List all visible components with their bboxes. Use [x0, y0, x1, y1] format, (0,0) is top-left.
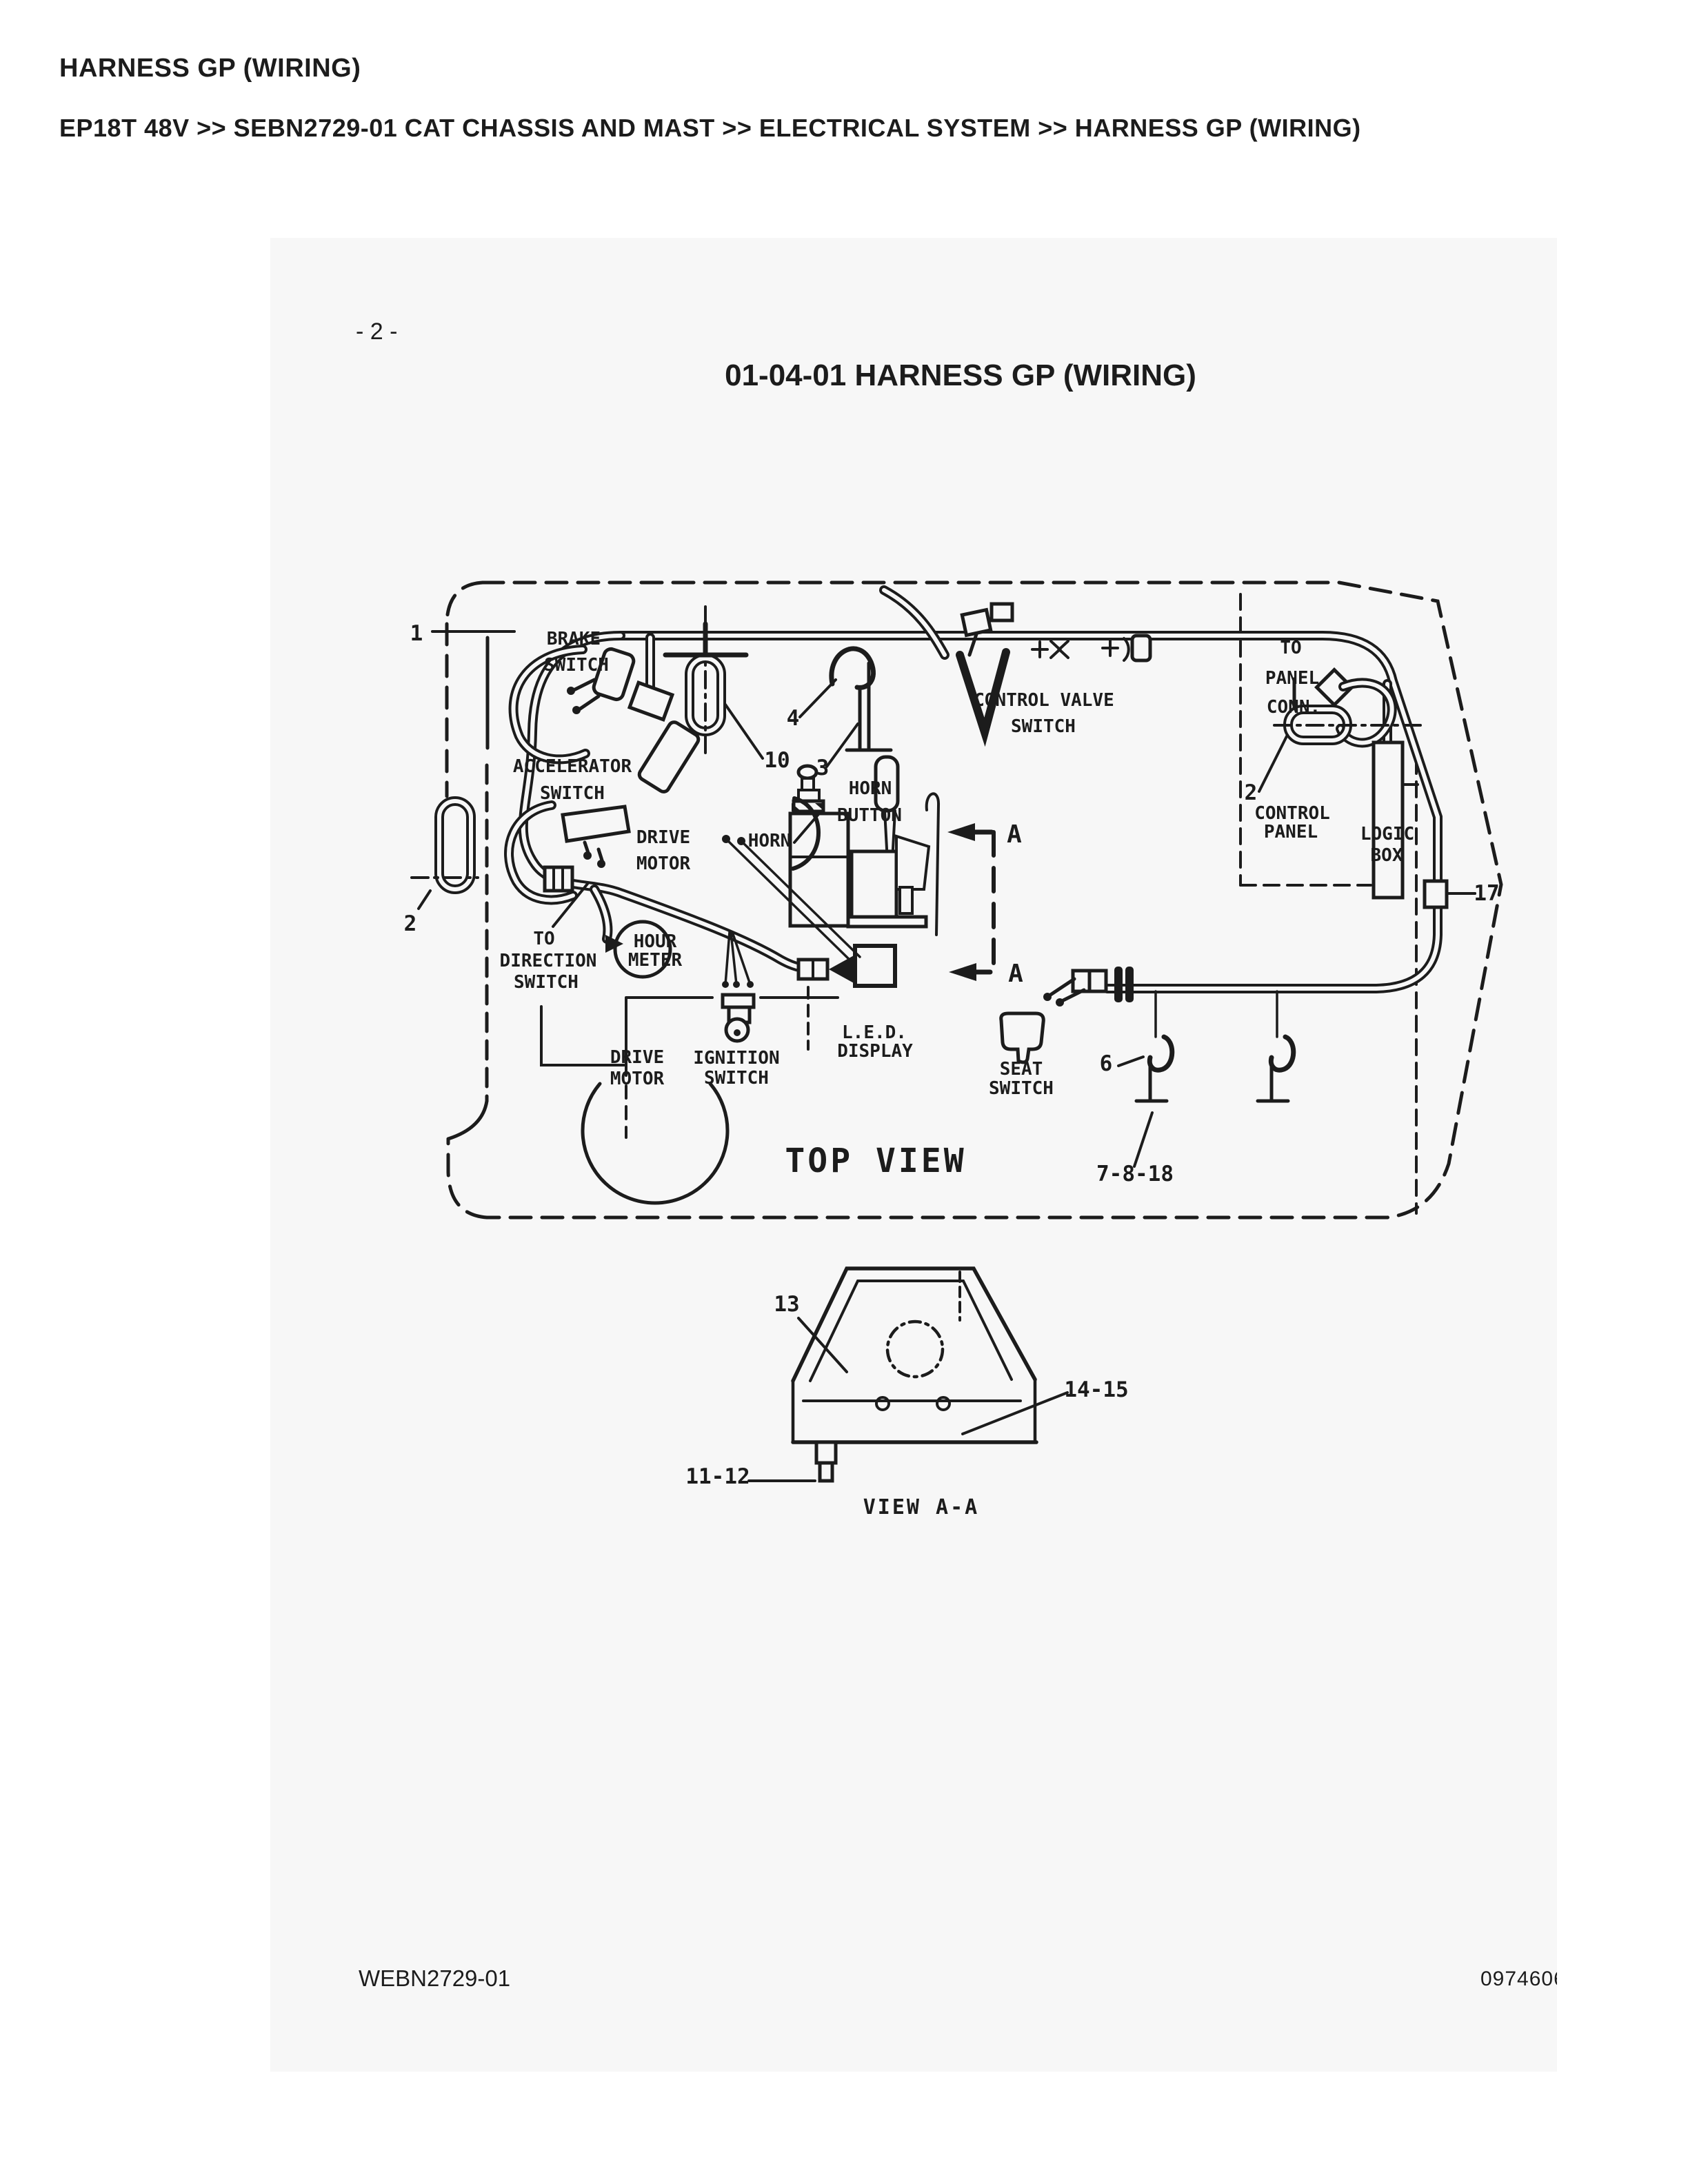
svg-text:METER: METER	[628, 950, 683, 971]
svg-text:MOTOR: MOTOR	[636, 853, 691, 874]
callout-1: 1	[410, 621, 423, 646]
view-a-a-caption: VIEW A-A	[863, 1495, 980, 1519]
callout-3: 3	[816, 756, 830, 780]
label-horn-button: HORN	[849, 778, 892, 799]
svg-text:PANEL: PANEL	[1264, 822, 1318, 842]
svg-text:SWITCH: SWITCH	[1011, 716, 1076, 737]
logic-box-icon	[1374, 742, 1418, 898]
svg-text:SWITCH: SWITCH	[544, 655, 609, 676]
led-display-icon	[798, 946, 895, 986]
svg-text:PANEL: PANEL	[1265, 668, 1319, 689]
top-view-caption: TOP VIEW	[785, 1142, 966, 1180]
clamp-icon-panel-wire	[1258, 991, 1294, 1101]
svg-text:DIRECTION: DIRECTION	[500, 951, 597, 971]
section-arrow-a-lower: A	[1008, 960, 1023, 988]
svg-text:BUTTON: BUTTON	[837, 805, 902, 826]
label-brake-switch: BRAKE	[547, 629, 601, 649]
label-to-direction-switch: TO	[533, 929, 554, 949]
label-control-panel: CONTROL	[1254, 803, 1330, 824]
label-to-panel-conn: TO	[1280, 638, 1301, 658]
label-ignition-switch: IGNITION	[693, 1048, 779, 1069]
svg-text:DISPLAY: DISPLAY	[837, 1041, 913, 1062]
svg-text:SWITCH: SWITCH	[540, 783, 605, 804]
label-accelerator-switch: ACCELERATOR	[513, 756, 632, 777]
callout-2-right: 2	[1245, 780, 1258, 805]
callout-10: 10	[764, 748, 790, 773]
manual-viewer: HARNESS GP (WIRING) EP18T 48V >> SEBN272…	[0, 0, 1688, 2184]
view-a-a-section	[793, 1268, 1036, 1481]
callout-14-15: 14-15	[1064, 1377, 1128, 1402]
callout-17: 17	[1474, 881, 1499, 906]
svg-text:SWITCH: SWITCH	[514, 972, 579, 993]
label-hour-meter: HOUR	[634, 931, 677, 952]
diagram-labels: 1 BRAKE SWITCH ACCELERATOR SWITCH 4 10 3…	[404, 621, 1500, 1519]
section-arrow-a-upper: A	[1007, 820, 1022, 849]
clamp-icon-top	[832, 649, 891, 750]
control-valve-switch-icon	[960, 604, 1150, 732]
svg-text:MOTOR: MOTOR	[610, 1069, 665, 1089]
callout-4: 4	[787, 706, 800, 731]
label-seat-switch: SEAT	[1000, 1059, 1043, 1080]
callout-13: 13	[774, 1292, 799, 1317]
svg-text:SWITCH: SWITCH	[989, 1078, 1054, 1099]
callout-11-12: 11-12	[685, 1464, 750, 1489]
wiring-diagram: 1 BRAKE SWITCH ACCELERATOR SWITCH 4 10 3…	[0, 0, 1688, 2184]
svg-text:BOX: BOX	[1371, 845, 1403, 866]
section-a-a-marks	[947, 823, 994, 981]
callout-2-left: 2	[404, 911, 417, 936]
grommet-icon-left	[412, 801, 478, 889]
label-drive-motor-lower: DRIVE	[610, 1047, 664, 1068]
svg-text:CONN.: CONN.	[1267, 697, 1320, 718]
label-horn: HORN	[748, 831, 792, 851]
label-control-valve-switch: CONTROL VALVE	[974, 690, 1114, 711]
clamp-icon-seat-wire	[1136, 991, 1172, 1101]
label-logic-box: LOGIC	[1360, 824, 1414, 845]
label-drive-motor-upper: DRIVE	[636, 827, 690, 848]
svg-text:SWITCH: SWITCH	[704, 1068, 769, 1089]
callout-7-8-18: 7-8-18	[1096, 1162, 1174, 1186]
label-led-display: L.E.D.	[842, 1022, 907, 1043]
callout-6: 6	[1100, 1051, 1113, 1076]
